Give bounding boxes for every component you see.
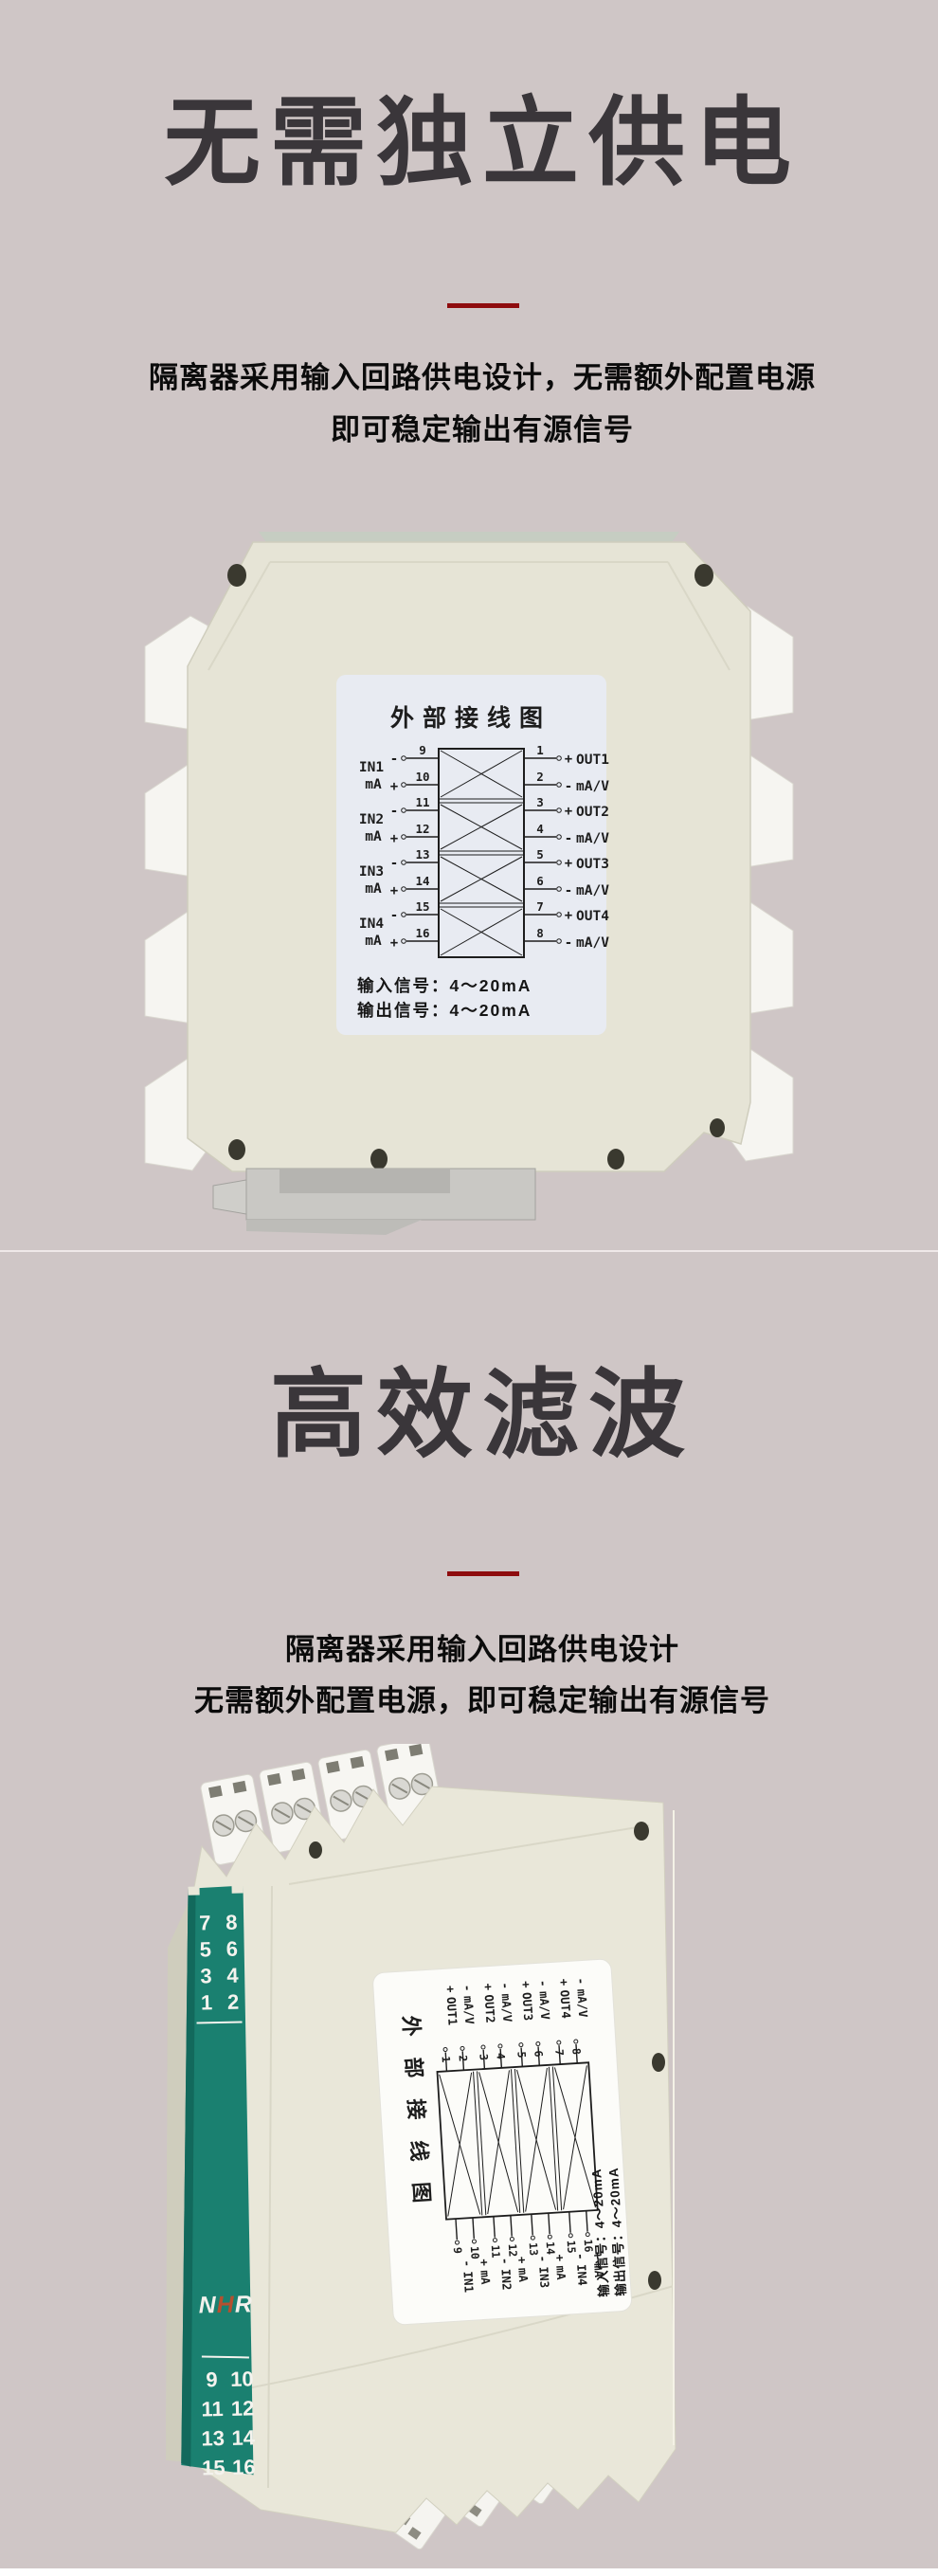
svg-text:7: 7 [552,2049,566,2057]
svg-text:9: 9 [206,2367,218,2391]
svg-text:OUT3: OUT3 [576,857,609,872]
svg-text:14: 14 [544,2241,558,2256]
section-power-heading: 无需独立供电 [13,91,938,195]
svg-text:-: - [565,779,572,794]
svg-text:OUT3: OUT3 [520,1992,536,2022]
svg-text:+: + [565,856,572,871]
svg-text:11: 11 [201,2397,224,2421]
svg-text:13: 13 [415,847,429,862]
nhr-logo: NHR [198,2291,252,2318]
section-filter-desc-2: 无需额外配置电源，即可稳定输出有源信号 [13,1686,938,1715]
section-power-divider [447,303,519,308]
footer-white-bar [0,2568,938,2576]
svg-text:+: + [565,804,572,819]
svg-text:3: 3 [200,1964,212,1987]
svg-text:10: 10 [230,2367,254,2391]
svg-text:OUT2: OUT2 [482,1994,498,2023]
svg-text:13: 13 [527,2242,541,2257]
svg-text:-: - [536,1980,550,1987]
svg-text:-: - [390,908,398,923]
svg-text:3: 3 [536,795,544,809]
wiring-label-front: 外部接线图 [336,675,609,1035]
svg-text:-: - [460,2259,475,2267]
svg-text:+: + [519,1981,533,1989]
svg-text:16: 16 [415,926,429,940]
section-power-desc-1: 隔离器采用输入回路供电设计，无需额外配置电源 [13,363,938,392]
svg-text:-: - [565,883,572,898]
svg-text:+: + [565,752,572,767]
svg-text:2: 2 [536,770,544,784]
svg-text:1: 1 [536,743,544,757]
section-power-heading-wrap: 无需独立供电 [13,91,938,195]
svg-text:4: 4 [494,2052,507,2059]
svg-text:1: 1 [201,1990,213,2014]
output-signal-spec: 输出信号：4～20mA [357,1001,532,1020]
svg-text:IN2: IN2 [498,2269,514,2291]
section-filter-heading: 高效滤波 [13,1363,938,1467]
svg-text:+: + [478,2259,492,2267]
svg-text:6: 6 [536,874,544,888]
svg-text:mA: mA [365,934,382,949]
svg-text:15: 15 [565,2240,579,2254]
svg-text:8: 8 [569,2048,583,2056]
svg-text:+: + [552,2254,567,2262]
svg-text:-: - [536,2255,550,2262]
svg-text:-: - [390,856,398,871]
svg-text:mA/V: mA/V [537,1991,553,2021]
svg-text:5: 5 [536,847,544,862]
svg-text:OUT2: OUT2 [576,805,609,820]
svg-text:10: 10 [468,2246,482,2260]
svg-text:OUT1: OUT1 [576,753,609,768]
svg-text:mA: mA [515,2267,531,2282]
svg-text:-: - [498,2258,513,2265]
svg-text:+: + [565,908,572,923]
svg-text:12: 12 [231,2396,255,2421]
svg-text:7: 7 [536,899,544,914]
svg-text:mA: mA [365,829,382,844]
svg-text:11: 11 [415,795,429,809]
svg-text:mA: mA [365,777,382,792]
svg-text:mA: mA [478,2270,493,2285]
wiring-label-side: 外 部 接 线 图 [372,1959,632,2326]
svg-text:-: - [498,1982,513,1989]
image-seam [0,1250,938,1252]
section-filter-divider [447,1571,519,1576]
svg-text:mA/V: mA/V [499,1993,515,2023]
svg-text:15: 15 [202,2456,225,2480]
svg-text:部: 部 [402,2057,426,2079]
svg-text:16: 16 [232,2455,256,2479]
svg-text:IN3: IN3 [536,2266,551,2288]
svg-text:14: 14 [231,2425,256,2450]
svg-text:IN4: IN4 [359,916,384,932]
svg-text:mA/V: mA/V [576,883,609,898]
svg-text:8: 8 [536,926,544,940]
svg-text:12: 12 [506,2243,520,2258]
svg-text:5: 5 [514,2051,528,2059]
svg-text:+: + [557,1978,571,1986]
svg-text:+: + [481,1983,496,1991]
svg-text:7: 7 [199,1911,211,1934]
section-filter-heading-wrap: 高效滤波 [13,1363,938,1467]
section-power-desc-2: 即可稳定输出有源信号 [13,415,938,444]
svg-text:IN1: IN1 [460,2271,476,2293]
svg-text:-: - [573,2253,587,2260]
svg-text:14: 14 [415,874,429,888]
svg-text:mA: mA [365,881,382,897]
svg-text:+: + [390,831,398,846]
svg-text:12: 12 [415,822,429,836]
din-rail-clip [213,1169,535,1235]
svg-text:+: + [390,779,398,794]
svg-text:OUT1: OUT1 [444,1997,460,2026]
svg-text:6: 6 [532,2050,545,2058]
svg-text:9: 9 [451,2247,464,2255]
svg-text:mA/V: mA/V [461,1995,478,2024]
svg-text:11: 11 [489,2244,503,2259]
svg-text:5: 5 [200,1937,212,1961]
svg-text:2: 2 [456,2055,469,2062]
svg-text:8: 8 [225,1911,238,1934]
input-signal-spec: 输入信号：4～20mA [357,976,532,995]
svg-text:1: 1 [439,2056,452,2063]
isolator-side-photo: 7 8 5 6 3 4 1 2 NHR 9 10 11 12 13 14 15 … [156,1744,687,2576]
svg-text:IN3: IN3 [359,864,384,880]
wiring-title: 外部接线图 [390,704,551,732]
svg-text:-: - [565,935,572,951]
svg-text:mA: mA [553,2265,568,2280]
svg-text:IN1: IN1 [359,760,384,775]
svg-text:+: + [443,1986,458,1994]
svg-text:接: 接 [404,2098,428,2121]
svg-text:mA/V: mA/V [576,831,609,846]
svg-text:3: 3 [477,2054,490,2061]
svg-text:-: - [574,1977,588,1985]
svg-text:-: - [390,752,398,767]
svg-text:10: 10 [415,770,429,784]
svg-text:IN4: IN4 [574,2264,589,2286]
svg-text:+: + [515,2256,530,2264]
svg-text:15: 15 [415,899,429,914]
svg-text:+: + [390,935,398,951]
isolator-front-photo: 外部接线图 [137,517,801,1237]
svg-text:mA/V: mA/V [574,1988,590,2018]
svg-text:线: 线 [406,2140,431,2163]
svg-text:6: 6 [226,1937,239,1961]
svg-text:13: 13 [201,2426,225,2451]
svg-text:mA/V: mA/V [576,935,609,951]
svg-text:9: 9 [419,743,426,757]
svg-text:OUT4: OUT4 [557,1989,573,2019]
strip-divider-line [197,2023,243,2023]
svg-text:4: 4 [226,1964,240,1987]
svg-text:4: 4 [536,822,544,836]
svg-text:IN2: IN2 [359,812,384,827]
svg-text:-: - [390,804,398,819]
product-detail-page: 无需独立供电 隔离器采用输入回路供电设计，无需额外配置电源 即可稳定输出有源信号 [0,0,938,2576]
svg-text:+: + [390,883,398,898]
svg-text:OUT4: OUT4 [576,909,609,924]
svg-text:-: - [565,831,572,846]
svg-text:mA/V: mA/V [576,779,609,794]
svg-text:-: - [460,1984,475,1991]
svg-text:2: 2 [227,1990,240,2014]
svg-text:外: 外 [399,2015,424,2038]
svg-text:图: 图 [409,2182,434,2204]
section-filter-desc-1: 隔离器采用输入回路供电设计 [13,1635,938,1664]
